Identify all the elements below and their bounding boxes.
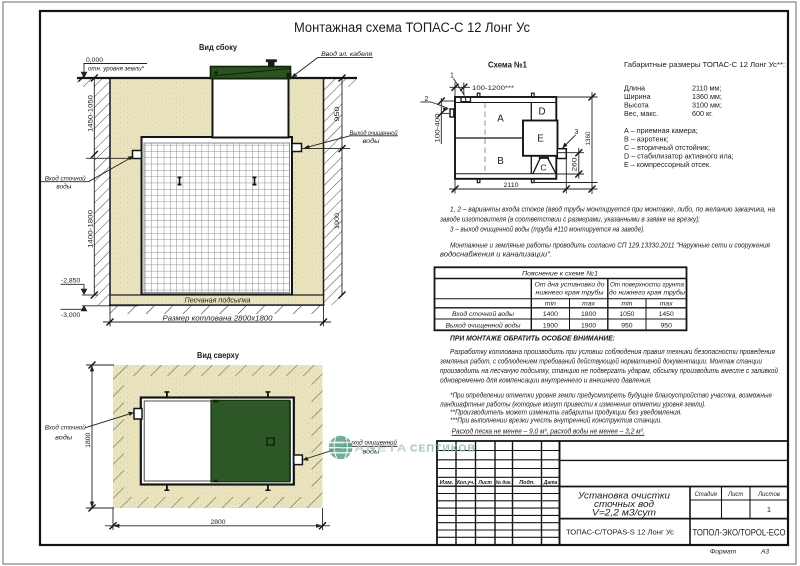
svg-text:Стадия: Стадия bbox=[694, 492, 717, 498]
svg-text:*При определении отметки уровн: *При определении отметки уровня земли пр… bbox=[450, 391, 772, 400]
svg-text:D: D bbox=[538, 107, 545, 118]
svg-text:-2,850: -2,850 bbox=[61, 278, 80, 285]
svg-text:воды: воды bbox=[55, 434, 72, 442]
svg-text:От дна установки до: От дна установки до bbox=[535, 281, 605, 289]
svg-text:воды: воды bbox=[363, 137, 380, 145]
svg-text:1900: 1900 bbox=[334, 212, 341, 229]
svg-text:Вход сточной: Вход сточной bbox=[45, 174, 86, 182]
svg-text:max: max bbox=[582, 301, 595, 308]
svg-text:A: A bbox=[497, 114, 504, 125]
svg-text:2110: 2110 bbox=[504, 182, 519, 189]
svg-text:А3: А3 bbox=[760, 549, 769, 556]
svg-text:Лист: Лист bbox=[478, 480, 493, 486]
svg-text:нижнего края трубы: нижнего края трубы bbox=[536, 289, 604, 297]
svg-text:Ввод эл. кабеля: Ввод эл. кабеля bbox=[321, 50, 372, 58]
svg-text:Выход очищенной воды: Выход очищенной воды bbox=[446, 322, 521, 330]
svg-text:Схема №1: Схема №1 bbox=[488, 60, 527, 70]
svg-text:Габаритные размеры ТОПАС-С 12: Габаритные размеры ТОПАС-С 12 Лонг Ус**: bbox=[624, 60, 785, 69]
svg-text:1900: 1900 bbox=[543, 323, 558, 330]
svg-text:0,000: 0,000 bbox=[86, 57, 103, 64]
svg-text:1450: 1450 bbox=[659, 311, 674, 318]
svg-text:1, 2 – варианты входа стоков: 1, 2 – варианты входа стоков (ввод трубы… bbox=[450, 205, 775, 214]
svg-text:Листов: Листов bbox=[757, 492, 780, 498]
svg-text:Е – компрессорный отсек.: Е – компрессорный отсек. bbox=[624, 160, 711, 169]
svg-text:950: 950 bbox=[334, 106, 341, 122]
svg-text:B: B bbox=[497, 156, 504, 167]
svg-text:1: 1 bbox=[450, 73, 454, 80]
svg-text:до нижнего края трубы: до нижнего края трубы bbox=[609, 289, 685, 297]
svg-text:Вес, макс.: Вес, макс. bbox=[624, 109, 658, 118]
svg-text:земляных работ, с соблюдением: земляных работ, с соблюдением требований… bbox=[439, 357, 762, 366]
svg-text:C: C bbox=[540, 163, 546, 173]
svg-text:Вход сточной: Вход сточной bbox=[45, 424, 86, 432]
svg-text:1450-1050: 1450-1050 bbox=[88, 94, 95, 132]
svg-text:3 – выход очищенной воды (труб: 3 – выход очищенной воды (труба #110 мон… bbox=[450, 225, 645, 234]
svg-text:Вход сточной воды: Вход сточной воды bbox=[452, 310, 514, 318]
svg-text:600 кг.: 600 кг. bbox=[692, 109, 713, 118]
svg-text:одновременно для компенсации в: одновременно для компенсации внутреннего… bbox=[440, 376, 652, 385]
svg-text:E: E bbox=[537, 134, 544, 145]
svg-text:***При выполнении врезки учест: ***При выполнении врезки учесть внутренн… bbox=[450, 416, 662, 425]
svg-text:1050: 1050 bbox=[619, 311, 634, 318]
svg-text:min: min bbox=[621, 301, 632, 308]
svg-text:100-1200***: 100-1200*** bbox=[472, 85, 514, 92]
svg-text:1: 1 bbox=[767, 505, 771, 514]
svg-text:1800: 1800 bbox=[85, 432, 92, 447]
svg-text:260: 260 bbox=[572, 157, 579, 171]
svg-text:1360: 1360 bbox=[585, 131, 592, 145]
svg-text:Вид сбоку: Вид сбоку bbox=[199, 42, 237, 52]
svg-text:Кол.уч.: Кол.уч. bbox=[457, 480, 475, 486]
svg-text:СЕПТИКОВ: СЕПТИКОВ bbox=[410, 443, 476, 455]
svg-text:ТОПАС-С/TOPAS-S 12 Лонг Ус: ТОПАС-С/TOPAS-S 12 Лонг Ус bbox=[566, 530, 675, 537]
svg-text:Монтажная схема ТОПАС-С 12 Лон: Монтажная схема ТОПАС-С 12 Лонг Ус bbox=[294, 20, 530, 35]
svg-text:Вид сверху: Вид сверху bbox=[197, 350, 239, 360]
svg-text:отн. уровня земли*: отн. уровня земли* bbox=[88, 66, 145, 73]
svg-text:Подп.: Подп. bbox=[519, 480, 535, 486]
svg-text:Разработку котлована производи: Разработку котлована производить при усл… bbox=[450, 347, 775, 356]
svg-text:1800: 1800 bbox=[581, 311, 596, 318]
svg-text:Выход очищенной: Выход очищенной bbox=[350, 129, 398, 137]
svg-text:Размер котлована 2800х1800: Размер котлована 2800х1800 bbox=[163, 315, 273, 322]
svg-text:Расход песка не менее – 9,0 м³: Расход песка не менее – 9,0 м³, расход в… bbox=[452, 427, 645, 436]
svg-text:Изм.: Изм. bbox=[440, 480, 455, 486]
svg-text:От поверхности грунта: От поверхности грунта bbox=[610, 282, 684, 289]
svg-text:950: 950 bbox=[621, 323, 633, 330]
svg-text:Дата: Дата bbox=[543, 480, 557, 486]
svg-text:№ док.: № док. bbox=[496, 480, 512, 486]
svg-text:-3,000: -3,000 bbox=[61, 312, 80, 319]
svg-text:Формат: Формат bbox=[710, 549, 737, 556]
svg-text:max: max bbox=[660, 301, 673, 308]
svg-text:заводе изготовителя (в соответ: заводе изготовителя (в соответствии с ра… bbox=[439, 215, 700, 224]
svg-text:ПРИ МОНТАЖЕ ОБРАТИТЬ ОСОБОЕ ВН: ПРИ МОНТАЖЕ ОБРАТИТЬ ОСОБОЕ ВНИМАНИЕ: bbox=[450, 334, 616, 343]
svg-text:min: min bbox=[545, 301, 556, 308]
svg-text:Песчаная подсыпка: Песчаная подсыпка bbox=[185, 297, 251, 305]
svg-text:950: 950 bbox=[661, 323, 673, 330]
svg-text:1900: 1900 bbox=[581, 323, 596, 330]
svg-text:водоснабжения и канализации".: водоснабжения и канализации". bbox=[440, 250, 552, 259]
svg-text:100-400: 100-400 bbox=[435, 113, 442, 142]
svg-text:2800: 2800 bbox=[211, 519, 226, 526]
svg-text:V=2,2 м3/сут: V=2,2 м3/сут bbox=[592, 508, 656, 518]
svg-text:производить на песчаную подсып: производить на песчаную подсыпку, станци… bbox=[440, 366, 778, 375]
svg-text:ТОПОЛ-ЭКО/TOPOL-ECO: ТОПОЛ-ЭКО/TOPOL-ECO bbox=[693, 527, 786, 538]
svg-text:Лист: Лист bbox=[727, 492, 743, 498]
svg-text:1400-1800: 1400-1800 bbox=[88, 209, 95, 248]
svg-text:воды: воды bbox=[56, 183, 71, 191]
svg-text:1400: 1400 bbox=[543, 311, 558, 318]
svg-text:Монтажные и земляные работы пр: Монтажные и земляные работы проводить со… bbox=[450, 241, 770, 250]
svg-text:Пояснение к схеме №1: Пояснение к схеме №1 bbox=[522, 271, 598, 278]
